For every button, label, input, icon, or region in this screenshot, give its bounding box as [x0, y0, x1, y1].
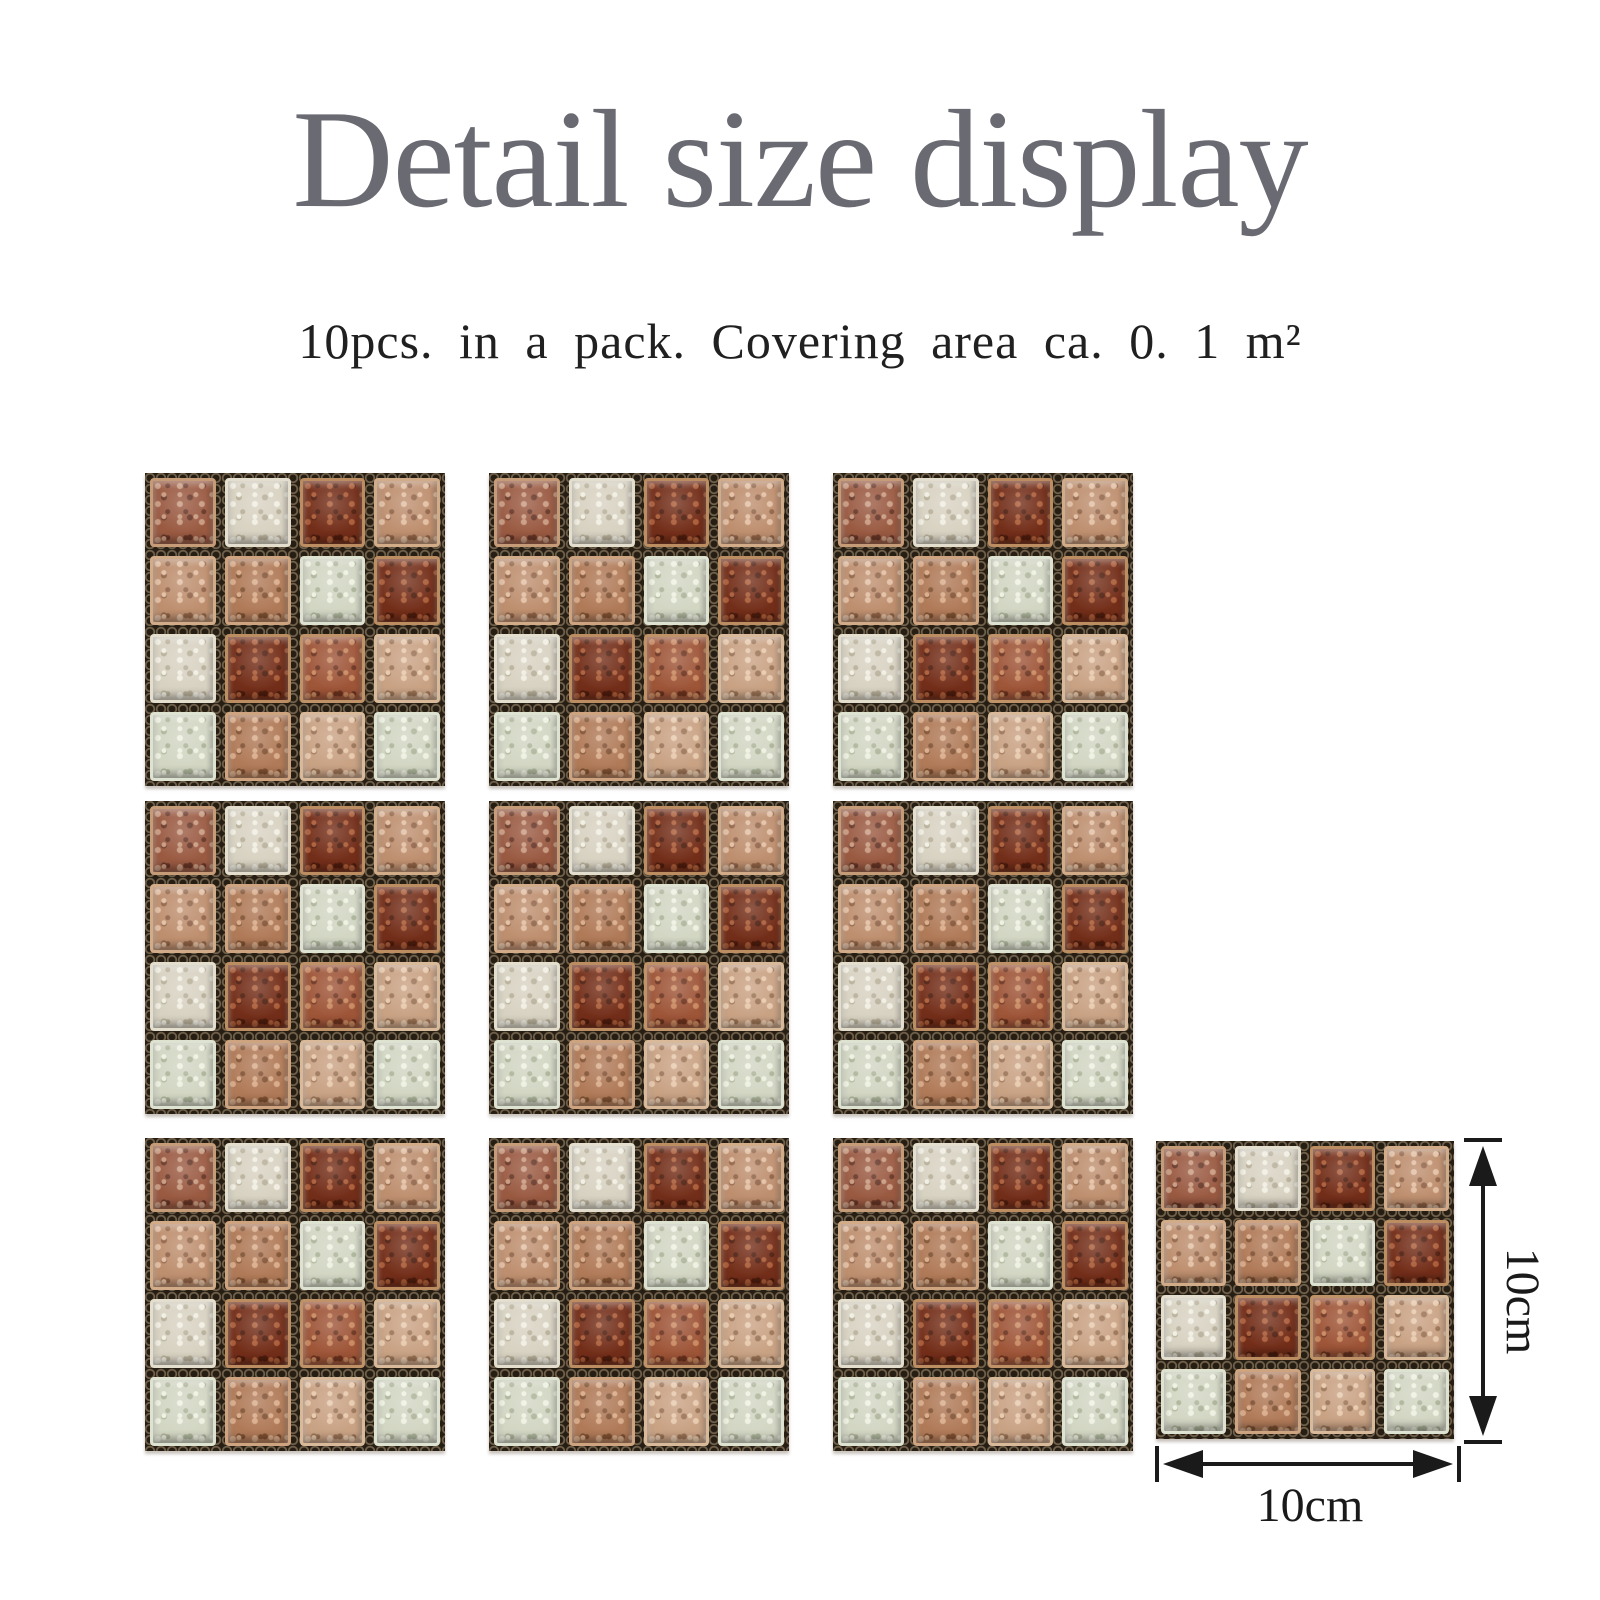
- mosaic-cell-cream: [150, 634, 216, 703]
- mosaic-cell-darkred: [225, 962, 291, 1031]
- mosaic-sticker-2: [489, 473, 789, 786]
- mosaic-cell-palegreen: [374, 1040, 440, 1109]
- mosaic-cell-palegreen: [644, 884, 710, 953]
- mosaic-cell-cream: [494, 962, 560, 1031]
- mosaic-cell-tan: [838, 884, 904, 953]
- mosaic-cell-midbrown: [913, 712, 979, 781]
- mosaic-cell-palegreen: [1062, 712, 1128, 781]
- mosaic-cell-midbrown: [913, 1040, 979, 1109]
- mosaic-cell-lighttan: [300, 712, 366, 781]
- mosaic-cell-cream: [569, 1143, 635, 1212]
- mosaic-cell-midbrown: [1235, 1220, 1300, 1285]
- mosaic-cell-brown: [150, 806, 216, 875]
- mosaic-cell-tan: [1062, 806, 1128, 875]
- mosaic-cell-cream: [494, 634, 560, 703]
- mosaic-cell-lighttan: [644, 1040, 710, 1109]
- mosaic-cell-cream: [1235, 1146, 1300, 1211]
- mosaic-cell-lighttan: [300, 1040, 366, 1109]
- mosaic-cell-darkred: [225, 1299, 291, 1368]
- mosaic-cell-darkred: [569, 1299, 635, 1368]
- mosaic-cell-palegreen: [988, 884, 1054, 953]
- mosaic-cell-darkred: [569, 634, 635, 703]
- mosaic-cell-darkred: [718, 556, 784, 625]
- mosaic-cell-cream: [838, 962, 904, 1031]
- mosaic-cell-lighttan: [644, 1377, 710, 1446]
- mosaic-cell-palegreen: [838, 1377, 904, 1446]
- mosaic-cell-tan: [718, 806, 784, 875]
- mosaic-cell-brown: [1161, 1146, 1226, 1211]
- mosaic-cell-lighttan: [718, 962, 784, 1031]
- mosaic-cell-tan: [1161, 1220, 1226, 1285]
- mosaic-cell-lighttan: [374, 962, 440, 1031]
- mosaic-cell-darkred: [1062, 556, 1128, 625]
- mosaic-cell-palegreen: [718, 1040, 784, 1109]
- mosaic-cell-redbrown: [300, 962, 366, 1031]
- mosaic-cell-darkred: [374, 884, 440, 953]
- mosaic-cell-palegreen: [718, 1377, 784, 1446]
- mosaic-cell-lighttan: [1310, 1369, 1375, 1434]
- mosaic-cell-palegreen: [644, 1221, 710, 1290]
- mosaic-sticker-1: [145, 473, 445, 786]
- mosaic-cell-redbrown: [988, 634, 1054, 703]
- mosaic-cell-lighttan: [644, 712, 710, 781]
- mosaic-cell-darkred: [988, 478, 1054, 547]
- mosaic-cell-redbrown: [1310, 1295, 1375, 1360]
- mosaic-cell-palegreen: [150, 1377, 216, 1446]
- mosaic-cell-darkred: [374, 556, 440, 625]
- mosaic-cell-midbrown: [225, 1221, 291, 1290]
- mosaic-cell-lighttan: [374, 1299, 440, 1368]
- mosaic-cell-midbrown: [569, 884, 635, 953]
- product-detail-image: Detail size display 10pcs. in a pack. Co…: [0, 0, 1600, 1600]
- mosaic-cell-darkred: [988, 806, 1054, 875]
- mosaic-cell-brown: [150, 478, 216, 547]
- mosaic-cell-darkred: [718, 884, 784, 953]
- mosaic-cell-tan: [150, 556, 216, 625]
- mosaic-cell-palegreen: [1161, 1369, 1226, 1434]
- mosaic-cell-palegreen: [150, 712, 216, 781]
- width-dimension-label: 10cm: [1230, 1482, 1390, 1530]
- mosaic-cell-lighttan: [374, 634, 440, 703]
- mosaic-cell-tan: [838, 556, 904, 625]
- mosaic-cell-midbrown: [913, 1221, 979, 1290]
- mosaic-cell-darkred: [225, 634, 291, 703]
- mosaic-cell-midbrown: [569, 1377, 635, 1446]
- mosaic-cell-cream: [225, 806, 291, 875]
- mosaic-cell-cream: [913, 806, 979, 875]
- mosaic-cell-midbrown: [569, 1040, 635, 1109]
- mosaic-cell-tan: [150, 1221, 216, 1290]
- mosaic-cell-palegreen: [644, 556, 710, 625]
- mosaic-cell-redbrown: [300, 1299, 366, 1368]
- mosaic-cell-tan: [374, 806, 440, 875]
- mosaic-cell-palegreen: [718, 712, 784, 781]
- mosaic-cell-palegreen: [300, 1221, 366, 1290]
- mosaic-sticker-3: [833, 473, 1133, 786]
- mosaic-cell-tan: [494, 1221, 560, 1290]
- mosaic-cell-midbrown: [225, 884, 291, 953]
- mosaic-cell-palegreen: [494, 712, 560, 781]
- mosaic-cell-tan: [838, 1221, 904, 1290]
- mosaic-cell-cream: [225, 1143, 291, 1212]
- mosaic-cell-lighttan: [1062, 634, 1128, 703]
- mosaic-cell-darkred: [1235, 1295, 1300, 1360]
- mosaic-cell-darkred: [644, 478, 710, 547]
- mosaic-cell-brown: [494, 478, 560, 547]
- mosaic-cell-cream: [494, 1299, 560, 1368]
- mosaic-cell-palegreen: [1062, 1040, 1128, 1109]
- mosaic-cell-lighttan: [300, 1377, 366, 1446]
- mosaic-cell-midbrown: [225, 712, 291, 781]
- mosaic-cell-tan: [718, 478, 784, 547]
- mosaic-cell-brown: [838, 1143, 904, 1212]
- mosaic-cell-tan: [1384, 1146, 1449, 1211]
- mosaic-cell-darkred: [1062, 884, 1128, 953]
- mosaic-cell-midbrown: [913, 884, 979, 953]
- mosaic-cell-palegreen: [374, 712, 440, 781]
- mosaic-cell-lighttan: [1062, 962, 1128, 1031]
- mosaic-cell-cream: [838, 1299, 904, 1368]
- mosaic-cell-lighttan: [1384, 1295, 1449, 1360]
- mosaic-cell-midbrown: [913, 1377, 979, 1446]
- mosaic-cell-palegreen: [1062, 1377, 1128, 1446]
- mosaic-cell-palegreen: [300, 556, 366, 625]
- mosaic-cell-palegreen: [988, 1221, 1054, 1290]
- mosaic-cell-redbrown: [644, 634, 710, 703]
- mosaic-cell-cream: [1161, 1295, 1226, 1360]
- mosaic-sticker-7: [145, 1138, 445, 1451]
- mosaic-cell-redbrown: [988, 962, 1054, 1031]
- mosaic-cell-tan: [718, 1143, 784, 1212]
- mosaic-cell-tan: [494, 556, 560, 625]
- mosaic-cell-redbrown: [644, 1299, 710, 1368]
- mosaic-cell-brown: [838, 806, 904, 875]
- mosaic-cell-darkred: [300, 478, 366, 547]
- mosaic-cell-cream: [569, 806, 635, 875]
- mosaic-cell-darkred: [718, 1221, 784, 1290]
- mosaic-cell-brown: [494, 806, 560, 875]
- mosaic-sticker-9: [833, 1138, 1133, 1451]
- mosaic-sticker-8: [489, 1138, 789, 1451]
- mosaic-cell-cream: [150, 962, 216, 1031]
- mosaic-cell-palegreen: [1310, 1220, 1375, 1285]
- mosaic-cell-cream: [569, 478, 635, 547]
- mosaic-cell-midbrown: [569, 1221, 635, 1290]
- mosaic-cell-tan: [1062, 1143, 1128, 1212]
- mosaic-cell-midbrown: [569, 712, 635, 781]
- mosaic-cell-lighttan: [718, 1299, 784, 1368]
- mosaic-sticker-4: [145, 801, 445, 1114]
- mosaic-cell-darkred: [1384, 1220, 1449, 1285]
- mosaic-cell-redbrown: [300, 634, 366, 703]
- mosaic-cell-palegreen: [838, 1040, 904, 1109]
- mosaic-cell-tan: [1062, 478, 1128, 547]
- mosaic-cell-darkred: [374, 1221, 440, 1290]
- mosaic-cell-tan: [150, 884, 216, 953]
- mosaic-cell-darkred: [913, 634, 979, 703]
- mosaic-cell-darkred: [300, 1143, 366, 1212]
- mosaic-cell-cream: [225, 478, 291, 547]
- mosaic-cell-darkred: [913, 962, 979, 1031]
- mosaic-cell-lighttan: [718, 634, 784, 703]
- mosaic-cell-lighttan: [988, 1040, 1054, 1109]
- mosaic-cell-brown: [494, 1143, 560, 1212]
- mosaic-cell-palegreen: [838, 712, 904, 781]
- mosaic-cell-midbrown: [1235, 1369, 1300, 1434]
- height-dimension-label: 10cm: [1498, 1231, 1546, 1371]
- mosaic-cell-redbrown: [988, 1299, 1054, 1368]
- mosaic-cell-cream: [150, 1299, 216, 1368]
- mosaic-cell-midbrown: [913, 556, 979, 625]
- mosaic-cell-tan: [374, 478, 440, 547]
- mosaic-cell-redbrown: [644, 962, 710, 1031]
- mosaic-cell-cream: [913, 1143, 979, 1212]
- mosaic-cell-palegreen: [374, 1377, 440, 1446]
- mosaic-cell-palegreen: [494, 1040, 560, 1109]
- mosaic-cell-darkred: [988, 1143, 1054, 1212]
- mosaic-cell-lighttan: [988, 712, 1054, 781]
- mosaic-cell-lighttan: [988, 1377, 1054, 1446]
- sticker-grid: [0, 0, 1600, 1600]
- mosaic-cell-midbrown: [225, 1377, 291, 1446]
- mosaic-cell-cream: [913, 478, 979, 547]
- mosaic-cell-cream: [838, 634, 904, 703]
- mosaic-cell-darkred: [300, 806, 366, 875]
- mosaic-cell-darkred: [913, 1299, 979, 1368]
- mosaic-cell-palegreen: [300, 884, 366, 953]
- mosaic-cell-darkred: [569, 962, 635, 1031]
- mosaic-cell-brown: [838, 478, 904, 547]
- mosaic-cell-palegreen: [988, 556, 1054, 625]
- mosaic-cell-palegreen: [494, 1377, 560, 1446]
- mosaic-cell-brown: [150, 1143, 216, 1212]
- mosaic-cell-midbrown: [225, 556, 291, 625]
- mosaic-cell-darkred: [644, 806, 710, 875]
- mosaic-cell-midbrown: [225, 1040, 291, 1109]
- mosaic-cell-lighttan: [1062, 1299, 1128, 1368]
- mosaic-sticker-6: [833, 801, 1133, 1114]
- mosaic-sticker-5: [489, 801, 789, 1114]
- mosaic-sticker-annotated: [1156, 1141, 1454, 1439]
- mosaic-cell-darkred: [1062, 1221, 1128, 1290]
- mosaic-cell-palegreen: [1384, 1369, 1449, 1434]
- mosaic-cell-darkred: [644, 1143, 710, 1212]
- mosaic-cell-palegreen: [150, 1040, 216, 1109]
- mosaic-cell-tan: [374, 1143, 440, 1212]
- mosaic-cell-darkred: [1310, 1146, 1375, 1211]
- mosaic-cell-midbrown: [569, 556, 635, 625]
- mosaic-cell-tan: [494, 884, 560, 953]
